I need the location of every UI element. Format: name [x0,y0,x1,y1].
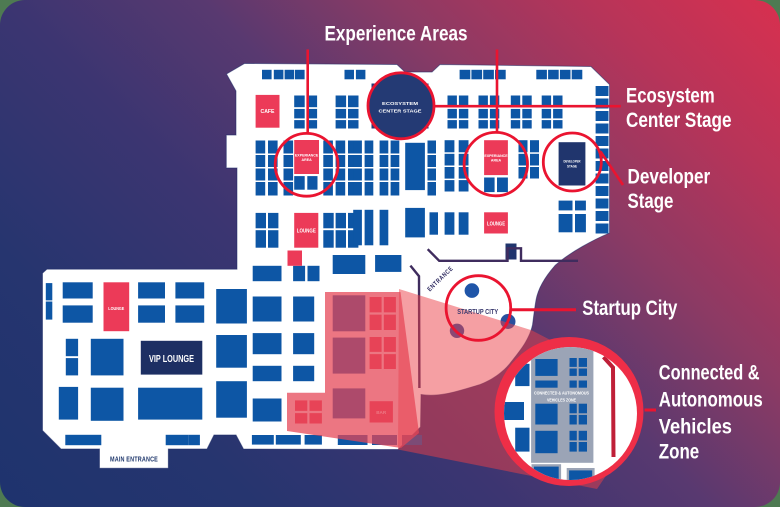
svg-text:CENTER STAGE: CENTER STAGE [379,108,422,113]
svg-text:Center Stage: Center Stage [626,109,732,132]
svg-text:Stage: Stage [628,190,674,213]
svg-text:VIP LOUNGE: VIP LOUNGE [149,354,194,365]
svg-text:STAGE: STAGE [567,165,578,169]
svg-text:ECOSYSTEM: ECOSYSTEM [382,101,418,106]
svg-text:Connected &: Connected & [659,362,760,385]
svg-text:Vehicles: Vehicles [659,416,732,439]
svg-text:AREA: AREA [302,158,313,162]
svg-text:Ecosystem: Ecosystem [626,85,715,108]
svg-text:CONNECTED & AUTONOMOUS: CONNECTED & AUTONOMOUS [534,390,589,395]
svg-text:Zone: Zone [659,441,700,464]
svg-text:LOUNGE: LOUNGE [108,306,124,311]
svg-text:Experience Areas: Experience Areas [325,22,468,45]
svg-text:Startup City: Startup City [582,297,677,320]
svg-text:Autonomous: Autonomous [659,389,763,412]
svg-text:VEHICLES ZONE: VEHICLES ZONE [547,397,576,402]
svg-text:STARTUP CITY: STARTUP CITY [457,309,498,316]
svg-text:Developer: Developer [628,166,711,189]
svg-text:AREA: AREA [491,159,502,163]
svg-text:LOUNGE: LOUNGE [297,229,316,235]
svg-text:EXPERIANCE: EXPERIANCE [484,154,508,158]
svg-text:MAIN ENTRANCE: MAIN ENTRANCE [110,457,158,464]
svg-text:LOUNGE: LOUNGE [487,221,506,227]
svg-text:EXPERIANCE: EXPERIANCE [295,154,319,158]
svg-text:DEVELOPER: DEVELOPER [564,160,581,164]
svg-text:CAFE: CAFE [261,109,276,115]
